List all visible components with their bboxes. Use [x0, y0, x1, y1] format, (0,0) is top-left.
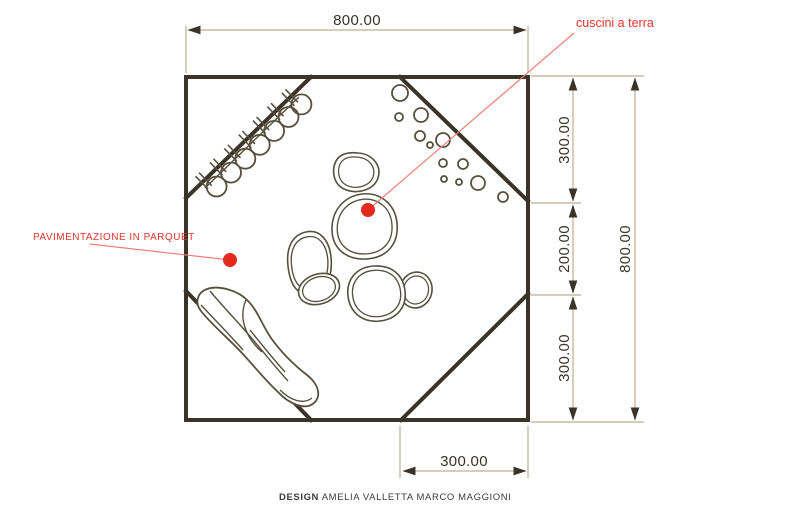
rack-hanger-rings	[207, 94, 312, 196]
decor-circles	[392, 85, 508, 202]
dim-right-total-value: 800.00	[617, 225, 634, 273]
flooring-label: PAVIMENTAZIONE IN PARQUET	[33, 232, 195, 243]
corner-wall-top-right	[400, 77, 528, 201]
floor-plan-page: 800.00 300.00 200.00 300.00 800.00 300.0…	[0, 0, 786, 515]
cushions-label: cuscini a terra	[576, 16, 654, 30]
marker-dot-flooring	[223, 253, 237, 267]
credits: DESIGN AMELIA VALLETTA MARCO MAGGIONI	[279, 492, 512, 503]
floor-cushion-right	[348, 266, 436, 321]
leader-line-flooring	[90, 244, 230, 260]
floor-plan-canvas: 800.00 300.00 200.00 300.00 800.00 300.0…	[0, 0, 786, 515]
dim-top-value: 800.00	[333, 12, 381, 29]
credits-role: DESIGN	[279, 492, 319, 503]
rack-rail	[205, 97, 299, 188]
fabric-outline	[197, 288, 318, 407]
credits-names: AMELIA VALLETTA MARCO MAGGIONI	[319, 492, 511, 503]
coat-rack	[196, 89, 312, 196]
draped-fabric	[197, 288, 318, 407]
dim-right-seg2-value: 200.00	[556, 225, 573, 273]
corner-wall-bottom-right	[401, 294, 528, 420]
floor-cushions	[288, 153, 436, 322]
dim-bottom-value: 300.00	[440, 453, 488, 470]
marker-dot-cushions	[361, 203, 375, 217]
dim-right-seg3-value: 300.00	[556, 334, 573, 382]
dim-right-seg1-value: 300.00	[556, 116, 573, 164]
